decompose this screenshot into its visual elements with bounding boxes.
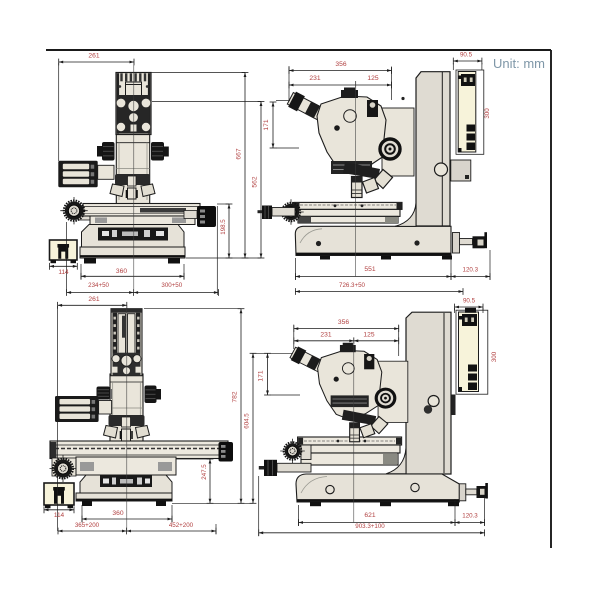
svg-text:365+200: 365+200	[75, 522, 100, 529]
svg-text:356: 356	[338, 319, 349, 326]
svg-text:360: 360	[112, 510, 123, 517]
svg-text:231: 231	[320, 331, 331, 338]
svg-text:300: 300	[491, 351, 498, 362]
svg-text:261: 261	[88, 52, 99, 59]
svg-text:114: 114	[58, 269, 69, 276]
svg-text:171: 171	[257, 370, 264, 381]
svg-text:231: 231	[309, 75, 320, 82]
svg-text:551: 551	[364, 266, 375, 273]
svg-text:562: 562	[251, 176, 258, 187]
svg-text:604.5: 604.5	[243, 413, 250, 429]
svg-text:125: 125	[363, 331, 374, 338]
svg-text:261: 261	[88, 296, 99, 303]
svg-text:120.3: 120.3	[462, 512, 478, 519]
svg-text:903.3+100: 903.3+100	[355, 523, 385, 530]
svg-text:90.5: 90.5	[460, 52, 473, 59]
svg-text:782: 782	[231, 391, 238, 402]
svg-text:120.3: 120.3	[463, 266, 479, 273]
svg-text:90.5: 90.5	[463, 298, 476, 305]
svg-text:300+50: 300+50	[161, 282, 182, 289]
svg-text:726.3+50: 726.3+50	[339, 282, 366, 289]
svg-text:452+200: 452+200	[169, 522, 194, 529]
svg-text:198.5: 198.5	[220, 219, 227, 235]
svg-text:234+50: 234+50	[88, 282, 109, 289]
svg-text:247.5: 247.5	[201, 464, 208, 480]
svg-text:621: 621	[364, 512, 375, 519]
svg-text:125: 125	[367, 75, 378, 82]
svg-text:114: 114	[54, 512, 65, 519]
svg-text:171: 171	[263, 119, 270, 130]
svg-text:667: 667	[235, 148, 242, 159]
svg-text:360: 360	[116, 268, 127, 275]
svg-text:300: 300	[484, 108, 491, 119]
svg-text:356: 356	[335, 61, 346, 68]
svg-text:Unit: mm: Unit: mm	[493, 56, 545, 71]
